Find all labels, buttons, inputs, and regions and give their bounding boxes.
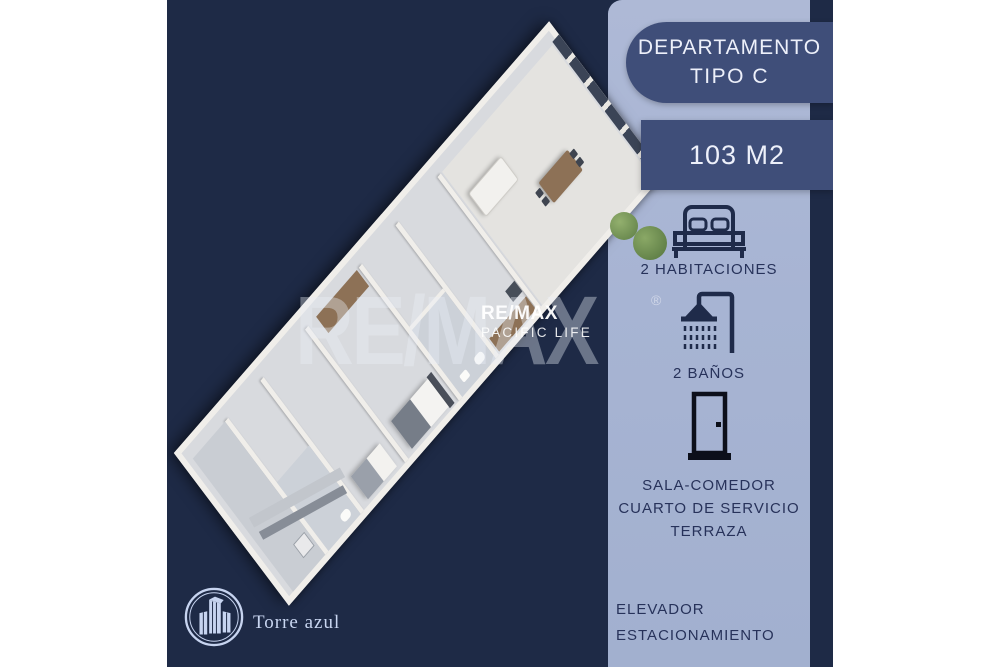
brand-name: Torre azul — [253, 612, 340, 634]
space-item: TERRAZA — [608, 520, 810, 543]
title-card: DEPARTAMENTO TIPO C — [626, 22, 833, 103]
area-card: 103 M2 — [641, 120, 833, 190]
spaces-list: SALA-COMEDOR CUARTO DE SERVICIO TERRAZA — [608, 474, 810, 543]
area-value: 103 M2 — [689, 140, 785, 171]
torre-azul-logo — [183, 586, 245, 653]
shower-icon — [677, 289, 741, 360]
space-item: CUARTO DE SERVICIO — [608, 497, 810, 520]
remax-pacific-life-logo: RE/MAX PACIFIC LIFE — [481, 304, 592, 340]
buildings-icon — [183, 586, 245, 648]
title-line-1: DEPARTAMENTO — [638, 36, 821, 60]
door-icon — [684, 391, 734, 468]
bed-icon — [670, 202, 748, 265]
bedrooms-label: 2 HABITACIONES — [608, 261, 810, 278]
amenity-parking: ESTACIONAMIENTO — [616, 627, 775, 644]
feature-bathrooms-icon-block — [608, 289, 810, 360]
bathrooms-label: 2 BAÑOS — [608, 365, 810, 382]
feature-spaces-icon-block — [608, 391, 810, 468]
listing-poster: RE/MAX ® RE/MAX PACIFIC LIFE DEPARTAMENT… — [167, 0, 833, 667]
remax-logo-text: RE/MAX — [481, 304, 592, 323]
amenity-elevator: ELEVADOR — [616, 601, 705, 618]
title-line-2: TIPO C — [690, 65, 769, 89]
space-item: SALA-COMEDOR — [608, 474, 810, 497]
feature-bedrooms-icon-block — [608, 202, 810, 265]
pacific-life-text: PACIFIC LIFE — [481, 326, 592, 340]
